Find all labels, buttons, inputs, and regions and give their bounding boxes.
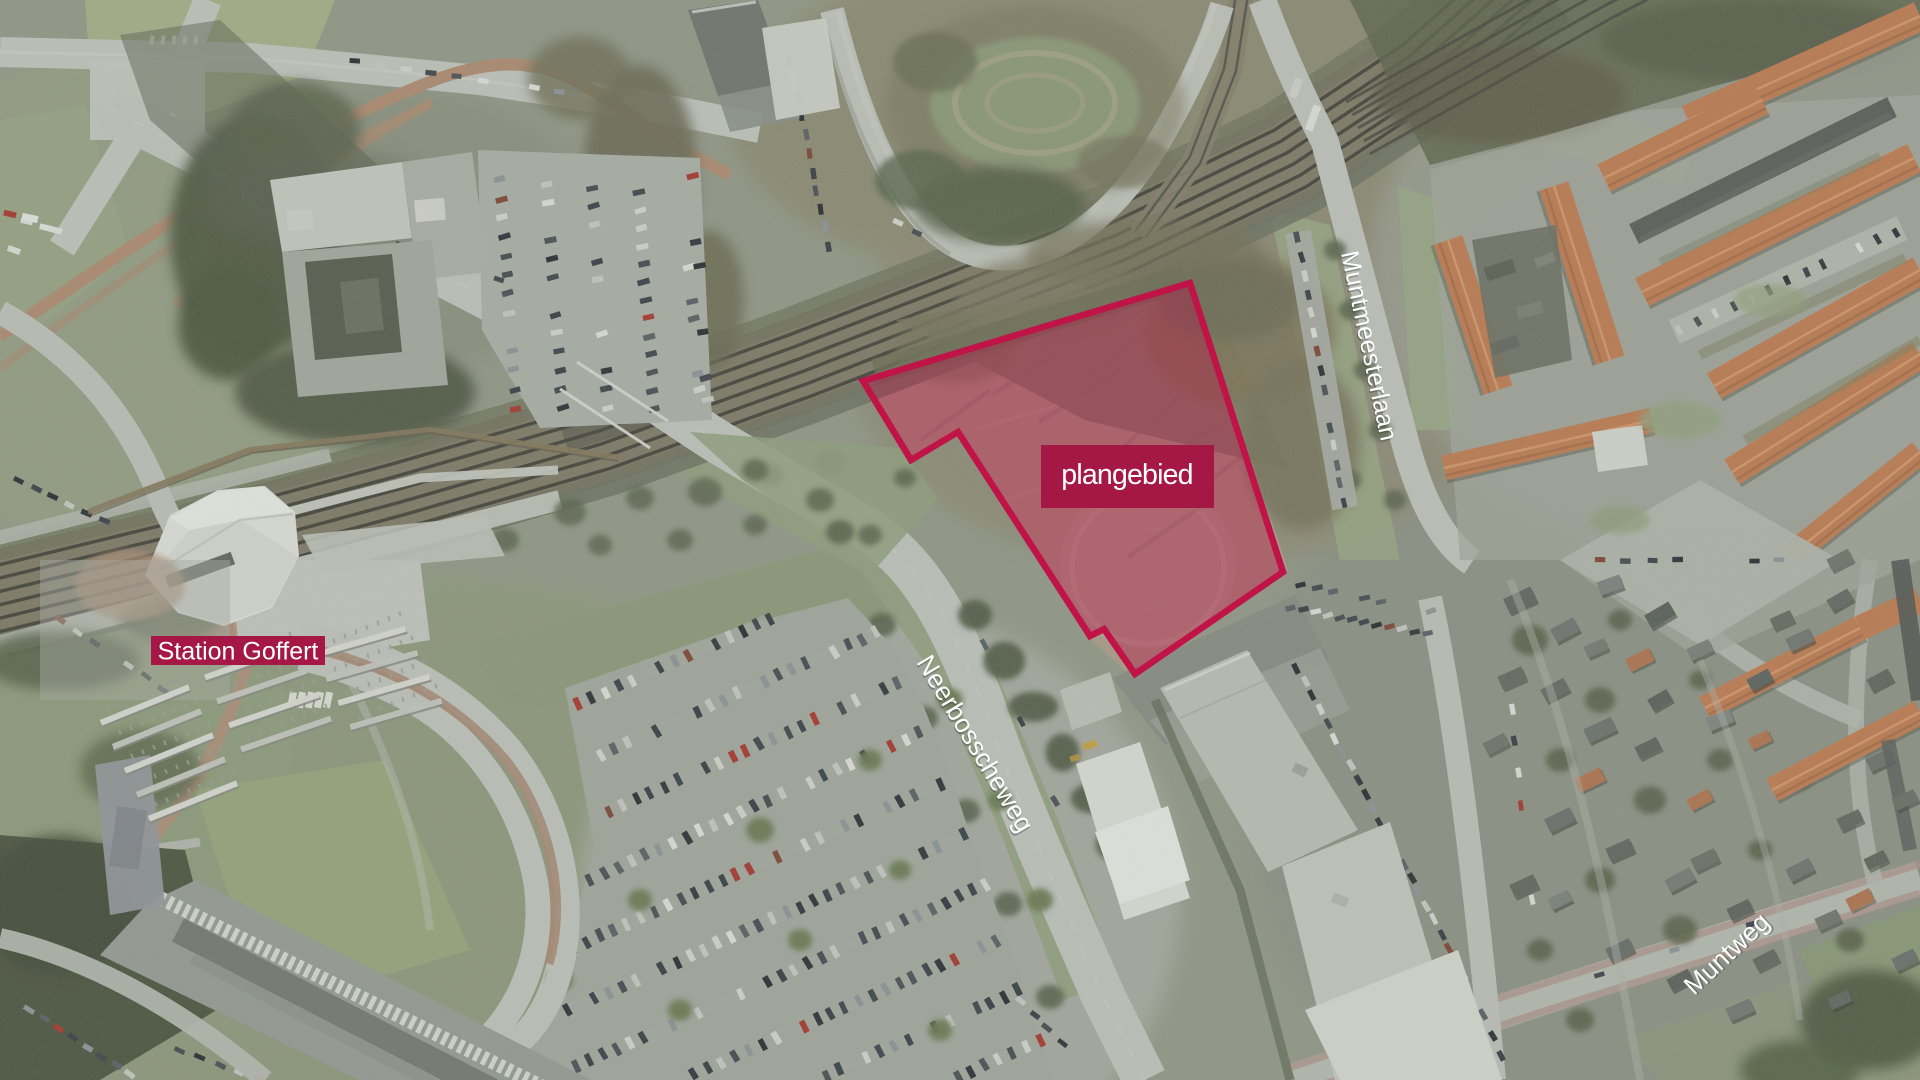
svg-text:Station Goffert: Station Goffert — [158, 638, 319, 666]
svg-text:plangebied: plangebied — [1061, 459, 1192, 491]
